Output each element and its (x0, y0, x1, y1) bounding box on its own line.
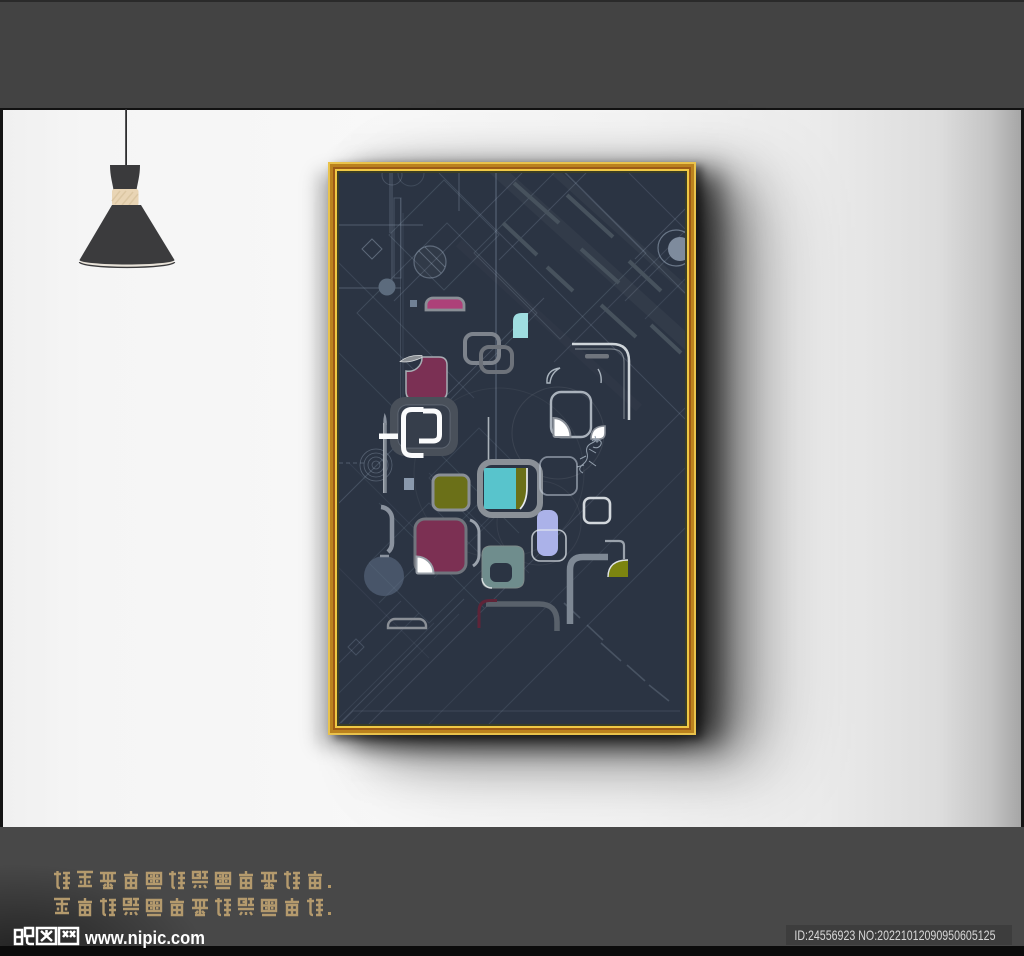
svg-text:www.nipic.com: www.nipic.com (84, 927, 205, 948)
